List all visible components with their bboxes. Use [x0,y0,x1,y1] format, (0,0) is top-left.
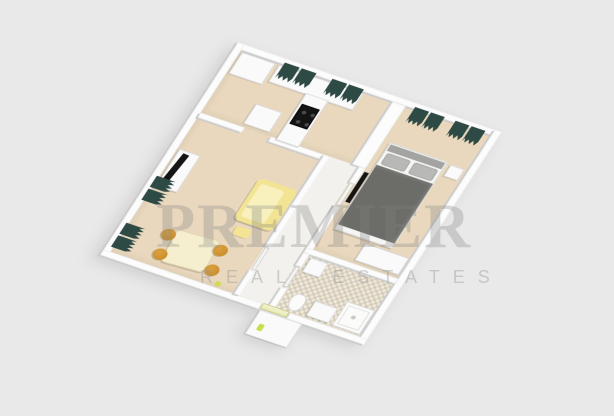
apartment-plan [100,42,502,345]
shower-drain [350,315,357,320]
floorplan-render: PREMIER REAL ESTATES [0,0,614,416]
